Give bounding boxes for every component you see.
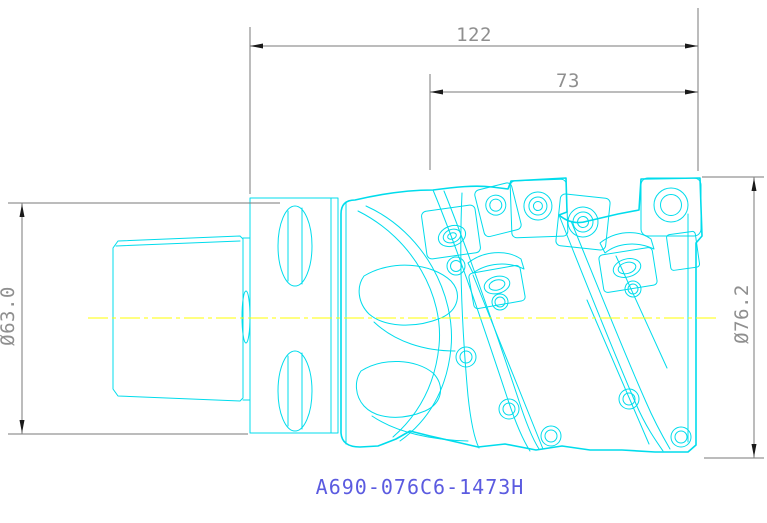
flange-slot-bottom [278,351,312,431]
arrowhead-bottom [20,420,25,433]
flange-slot-top [278,206,312,286]
cutter-body [341,178,702,452]
arrowhead-top [752,178,757,191]
arrowhead-left [430,90,443,95]
shank-edge-line [116,241,240,246]
insert-angled-3 [598,247,657,293]
flange-body [250,198,331,433]
chip-pockets [356,265,468,441]
arrowhead-right [685,90,698,95]
milling-cutter-drawing: 122 73 Ø63.0 Ø76.2 A690-076C6-1473H [0,0,767,523]
clamp-wedges [468,233,654,273]
part-number-label: A690-076C6-1473H [316,475,525,499]
cutter-body-outline [341,178,702,452]
dimension-value-63: Ø63.0 [0,286,19,346]
arrowhead-right [685,44,698,49]
flange-right-band [331,198,338,433]
dimension-value-73: 73 [556,70,580,92]
dimension-overall-length: 122 [250,8,698,194]
arrowhead-bottom [752,444,757,457]
insert-top-3 [641,178,701,236]
tool-geometry [113,178,702,452]
flange-left-band [243,238,250,400]
dimension-cutting-length: 73 [430,70,698,170]
insert-angled-1 [421,204,481,259]
arrowhead-top [20,204,25,217]
insert-top-partial [474,182,522,238]
flange [242,198,338,433]
arrowhead-left [250,44,263,49]
dimension-value-76: Ø76.2 [731,284,753,344]
cad-drawing-canvas: 122 73 Ø63.0 Ø76.2 A690-076C6-1473H [0,0,767,523]
insert-angled-2 [468,265,525,309]
dimension-value-122: 122 [456,24,492,46]
insert-seat-right [666,231,700,271]
